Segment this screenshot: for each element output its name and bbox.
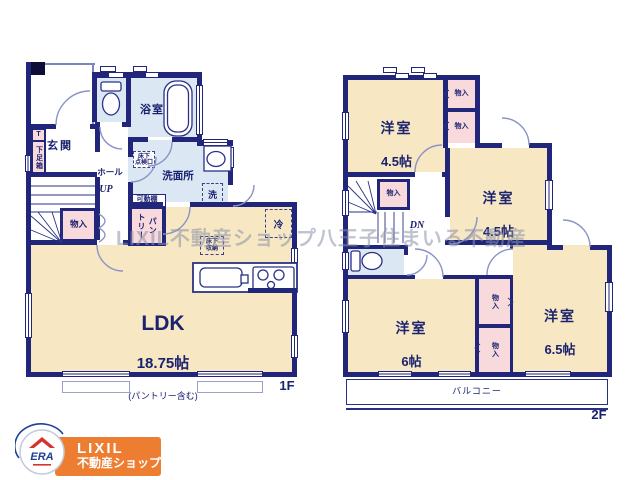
counter-wall (248, 288, 297, 293)
door-arc-room-d-top (563, 220, 590, 247)
door-arc-toilet-2f (407, 255, 427, 275)
ldk-size: 18.75帖 (103, 355, 223, 372)
label-room-a: 洋室 4.5帖 (348, 102, 445, 188)
burner-icon (274, 270, 284, 280)
kitchen-sink-icon (200, 268, 242, 287)
door-arc-entrance (56, 91, 90, 125)
label-floor-1f: 1F (272, 379, 302, 394)
door-arc-toilet-1f (100, 127, 122, 149)
door-arc-backdoor (233, 185, 254, 206)
room-c-name: 洋室 (348, 320, 475, 336)
door-arc-room-c (415, 249, 443, 277)
closet-door-mark (444, 90, 449, 98)
ldk-note: (パントリー含む) (103, 391, 223, 401)
room-d-name: 洋室 (513, 308, 607, 324)
label-hall: ホール (92, 168, 128, 178)
room-c-size: 6帖 (348, 355, 475, 370)
watermark-text: LIXIL不動産ショップ八王子住まいる不動産 (116, 222, 527, 251)
label-balcony: バルコニー (412, 386, 542, 396)
label-floor-2f: 2F (584, 408, 614, 423)
toilet-bowl-icon (103, 93, 120, 115)
company-logo: LIXIL 不動産ショップ ERA (15, 422, 175, 480)
toilet-tank-icon-2f (351, 251, 360, 271)
door-arc-room-b-top (502, 118, 529, 145)
toilet-tank-icon (101, 82, 121, 91)
era-emblem: ERA (15, 422, 71, 480)
washbasin-bowl-icon (207, 152, 225, 167)
room-d-size: 6.5帖 (513, 343, 607, 358)
label-ldk: LDK 18.75帖 (パントリー含む) (103, 294, 223, 419)
floorplan-canvas: T 下足箱 物入 可動棚 トリー パン 物入 物入 物入 物入 物入 床下 点検… (0, 0, 640, 480)
logo-sub-text: 不動産ショップ (77, 456, 161, 471)
bifold-door-closet-1f (99, 214, 105, 242)
ldk-name: LDK (103, 312, 223, 336)
label-up: UP (94, 184, 118, 196)
room-a-name: 洋室 (348, 120, 445, 136)
toilet-bowl-icon-2f (362, 253, 382, 270)
label-washroom: 洗面所 (148, 170, 208, 182)
logo-brand-text: LIXIL (77, 441, 161, 456)
label-genkan: 玄関 (40, 140, 80, 153)
era-underline (33, 464, 51, 466)
kitchen-faucet-icon (241, 275, 248, 283)
label-room-d: 洋室 6.5帖 (513, 290, 607, 376)
closet-door-mark (475, 344, 480, 352)
room-b-name: 洋室 (450, 190, 547, 206)
label-bath: 浴室 (128, 104, 176, 117)
burner-icon (268, 282, 275, 289)
door-arc-bath (148, 142, 172, 166)
label-room-c: 洋室 6帖 (348, 302, 475, 388)
stairs-1f (31, 186, 95, 243)
room-a-size: 4.5帖 (348, 155, 445, 170)
burner-icon (258, 270, 268, 280)
era-text: ERA (30, 451, 53, 463)
